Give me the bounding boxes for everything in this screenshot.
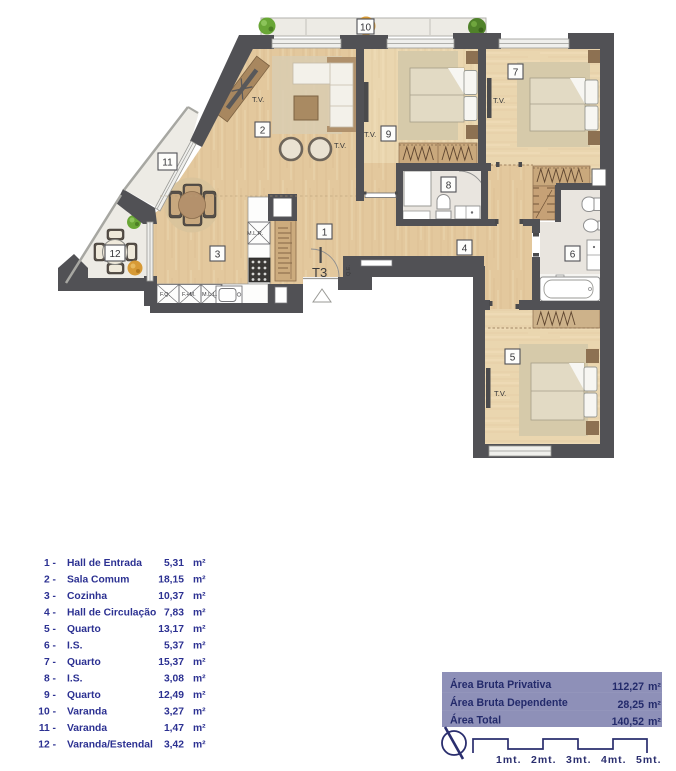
svg-text:m²: m² <box>193 591 206 602</box>
svg-text:Hall de Entrada: Hall de Entrada <box>67 558 142 569</box>
svg-text:m²: m² <box>193 608 206 619</box>
svg-text:m²: m² <box>648 716 661 728</box>
svg-text:M.L.L.: M.L.L. <box>202 292 218 298</box>
svg-text:4mt.: 4mt. <box>601 754 627 766</box>
svg-text:T.V.: T.V. <box>493 96 505 105</box>
svg-text:Varanda: Varanda <box>67 723 107 734</box>
svg-text:Quarto: Quarto <box>67 690 101 701</box>
svg-text:Q.E.: Q.E. <box>346 265 352 276</box>
svg-text:10: 10 <box>360 23 372 34</box>
svg-text:Cozinha: Cozinha <box>67 591 107 602</box>
svg-text:m²: m² <box>193 624 206 635</box>
svg-text:m²: m² <box>193 641 206 652</box>
svg-text:T3: T3 <box>312 265 327 280</box>
svg-text:12,49: 12,49 <box>158 690 184 701</box>
svg-text:Sala Comum: Sala Comum <box>67 575 129 586</box>
svg-text:2 -: 2 - <box>44 575 57 586</box>
svg-text:2mt.: 2mt. <box>531 754 557 766</box>
svg-text:Quarto: Quarto <box>67 624 101 635</box>
svg-text:2: 2 <box>260 126 266 137</box>
svg-text:Área Bruta Dependente: Área Bruta Dependente <box>450 696 568 709</box>
svg-text:5 -: 5 - <box>44 624 57 635</box>
svg-text:m²: m² <box>193 575 206 586</box>
svg-text:T.V.: T.V. <box>494 389 506 398</box>
svg-text:3,08: 3,08 <box>164 674 184 685</box>
svg-text:m²: m² <box>193 707 206 718</box>
svg-text:m²: m² <box>193 657 206 668</box>
svg-text:4: 4 <box>462 244 468 255</box>
svg-text:3 -: 3 - <box>44 591 57 602</box>
svg-text:7 -: 7 - <box>44 657 57 668</box>
svg-text:m²: m² <box>193 723 206 734</box>
svg-text:I.S.: I.S. <box>67 641 83 652</box>
svg-text:9 -: 9 - <box>44 690 57 701</box>
svg-text:7,83: 7,83 <box>164 608 184 619</box>
svg-text:3,42: 3,42 <box>164 740 184 751</box>
svg-text:T.V.: T.V. <box>252 95 264 104</box>
svg-text:Varanda/Estendal: Varanda/Estendal <box>67 740 153 751</box>
svg-text:11 -: 11 - <box>39 723 57 734</box>
svg-text:8 -: 8 - <box>44 674 57 685</box>
svg-text:18,15: 18,15 <box>158 575 184 586</box>
svg-text:13,17: 13,17 <box>158 624 184 635</box>
svg-text:Hall de Circulação: Hall de Circulação <box>67 608 156 619</box>
svg-text:5mt.: 5mt. <box>636 754 662 766</box>
svg-text:7: 7 <box>513 68 519 79</box>
svg-text:12: 12 <box>109 249 121 260</box>
svg-text:T.V.: T.V. <box>364 130 376 139</box>
svg-text:9: 9 <box>386 130 392 141</box>
svg-text:6: 6 <box>570 250 576 261</box>
svg-text:28,25: 28,25 <box>617 699 644 711</box>
svg-text:15,37: 15,37 <box>158 657 184 668</box>
svg-text:M.L.R.: M.L.R. <box>247 231 264 237</box>
svg-text:5,37: 5,37 <box>164 641 184 652</box>
svg-text:6 -: 6 - <box>44 641 57 652</box>
svg-text:140,52: 140,52 <box>612 716 645 728</box>
svg-text:Área Bruta Privativa: Área Bruta Privativa <box>450 678 551 691</box>
svg-text:T.V.: T.V. <box>334 141 346 150</box>
svg-text:m²: m² <box>193 740 206 751</box>
svg-text:8: 8 <box>446 181 452 192</box>
svg-text:3mt.: 3mt. <box>566 754 592 766</box>
svg-text:4 -: 4 - <box>44 608 57 619</box>
svg-text:112,27: 112,27 <box>612 681 644 693</box>
svg-text:11: 11 <box>162 158 173 169</box>
svg-text:1mt.: 1mt. <box>496 754 522 766</box>
svg-text:F.+M.: F.+M. <box>182 292 196 298</box>
svg-text:10,37: 10,37 <box>158 591 184 602</box>
svg-text:10 -: 10 - <box>38 707 56 718</box>
svg-text:m²: m² <box>648 699 661 711</box>
svg-text:3,27: 3,27 <box>164 707 184 718</box>
svg-text:5,31: 5,31 <box>164 558 184 569</box>
svg-text:F.Q.: F.Q. <box>160 292 171 298</box>
svg-text:1: 1 <box>322 228 328 239</box>
svg-text:1 -: 1 - <box>44 558 57 569</box>
svg-text:5: 5 <box>510 353 516 364</box>
svg-text:12 -: 12 - <box>38 740 56 751</box>
svg-text:1,47: 1,47 <box>164 723 184 734</box>
svg-text:3: 3 <box>215 250 221 261</box>
svg-text:m²: m² <box>193 674 206 685</box>
svg-text:I.S.: I.S. <box>67 674 83 685</box>
svg-text:Quarto: Quarto <box>67 657 101 668</box>
svg-text:Varanda: Varanda <box>67 707 107 718</box>
svg-text:m²: m² <box>193 690 206 701</box>
svg-text:Área Total: Área Total <box>450 714 501 727</box>
svg-text:m²: m² <box>648 681 661 693</box>
svg-text:m²: m² <box>193 558 206 569</box>
